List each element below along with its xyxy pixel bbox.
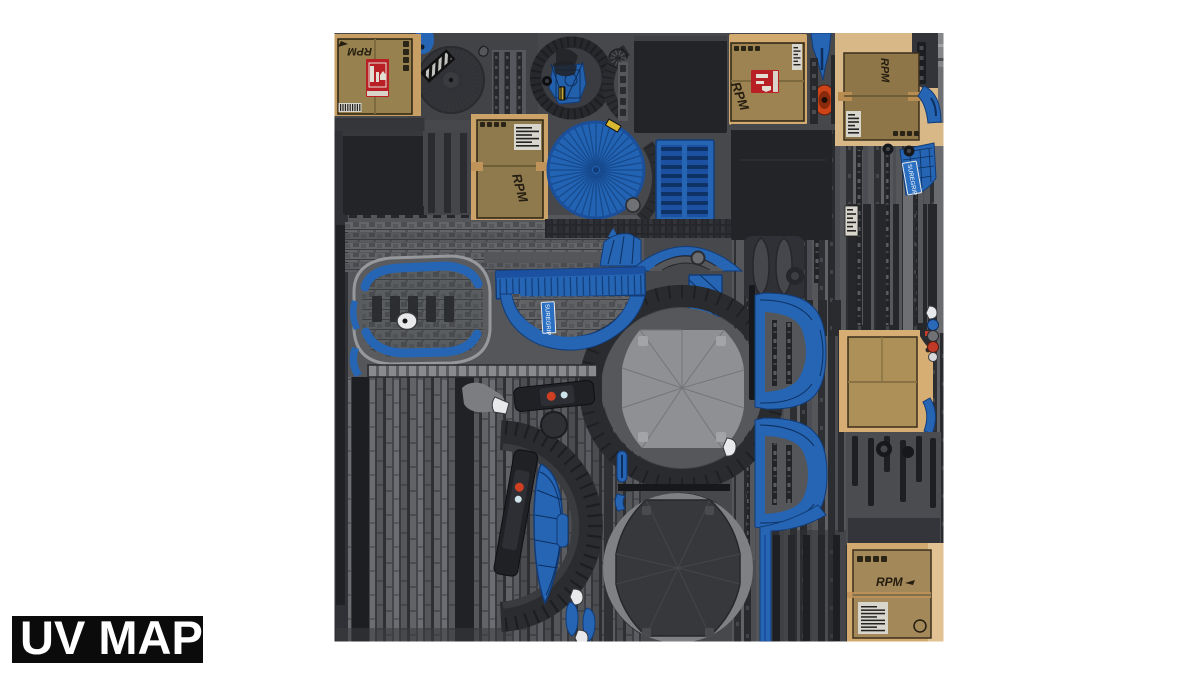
svg-text:UV MAP: UV MAP [20,611,203,664]
svg-text:RPM: RPM [347,45,372,57]
svg-text:RPM: RPM [878,58,891,84]
svg-text:RPM: RPM [876,575,904,589]
